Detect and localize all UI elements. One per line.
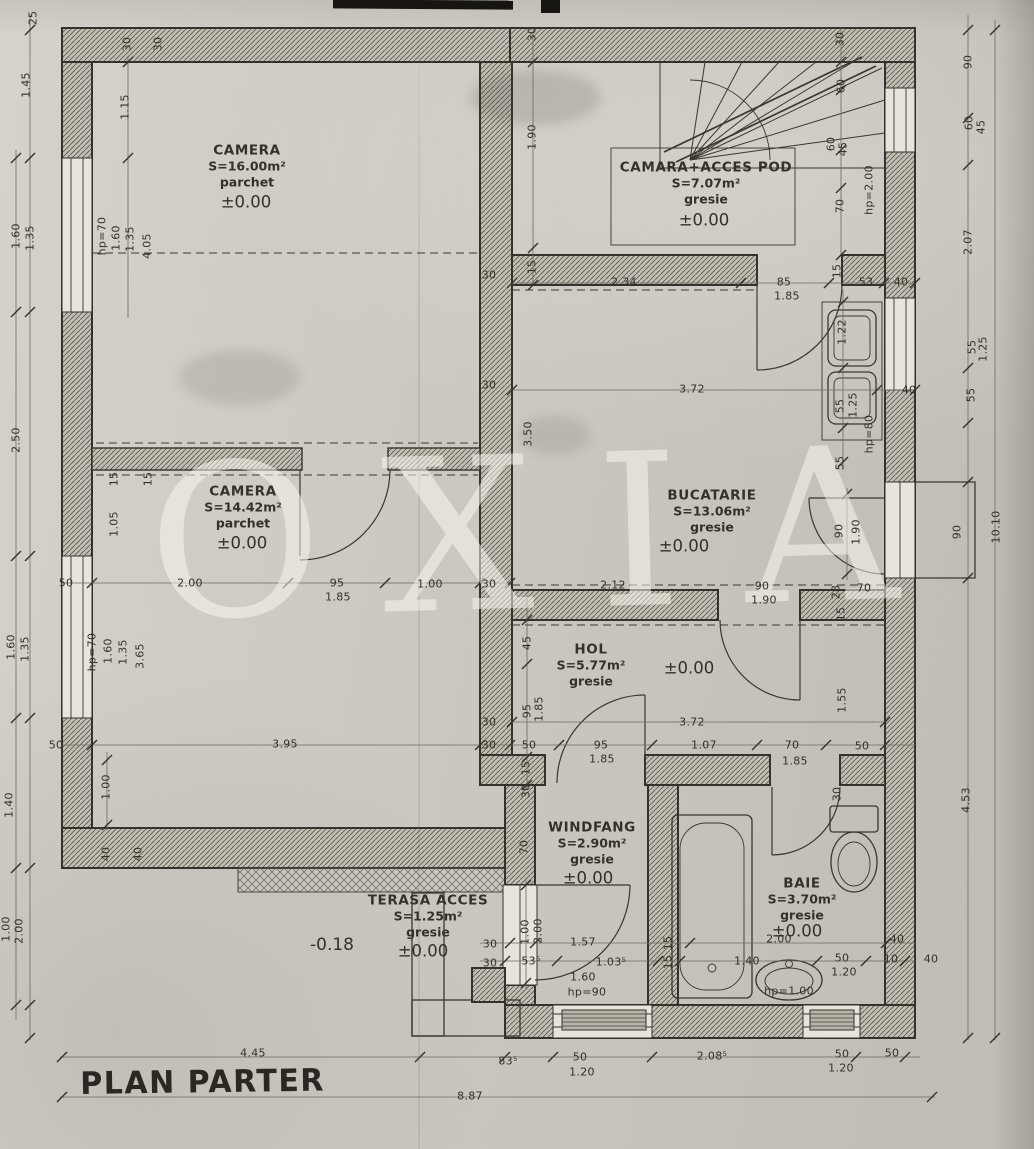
scan-artifact	[333, 0, 513, 10]
door-opening	[503, 885, 537, 985]
window	[62, 556, 92, 718]
pod-area-outline	[611, 148, 795, 245]
doormat	[562, 1010, 646, 1030]
paper-crease	[418, 0, 420, 1149]
outside-level-label: -0.18	[310, 935, 354, 955]
plan-title: PLAN PARTER	[80, 1063, 325, 1102]
floor-plan-drawing	[0, 0, 1034, 1149]
door-arc	[535, 885, 630, 980]
kitchen-sink	[822, 302, 882, 440]
window	[62, 158, 92, 312]
door-arc	[557, 695, 645, 783]
toilet	[830, 806, 878, 892]
stairs	[660, 57, 885, 168]
door-opening	[885, 482, 915, 578]
bathtub	[672, 815, 752, 998]
window	[885, 88, 915, 152]
door-arc	[720, 620, 800, 700]
exterior-niche	[915, 482, 975, 578]
doormat	[810, 1010, 854, 1030]
door-arc	[300, 470, 390, 560]
scanned-floor-plan-page: 3030251.451.601.352.501.601.351.401.002.…	[0, 0, 1034, 1149]
door-arc	[757, 285, 842, 370]
scan-artifact	[541, 0, 560, 13]
window	[885, 298, 915, 390]
